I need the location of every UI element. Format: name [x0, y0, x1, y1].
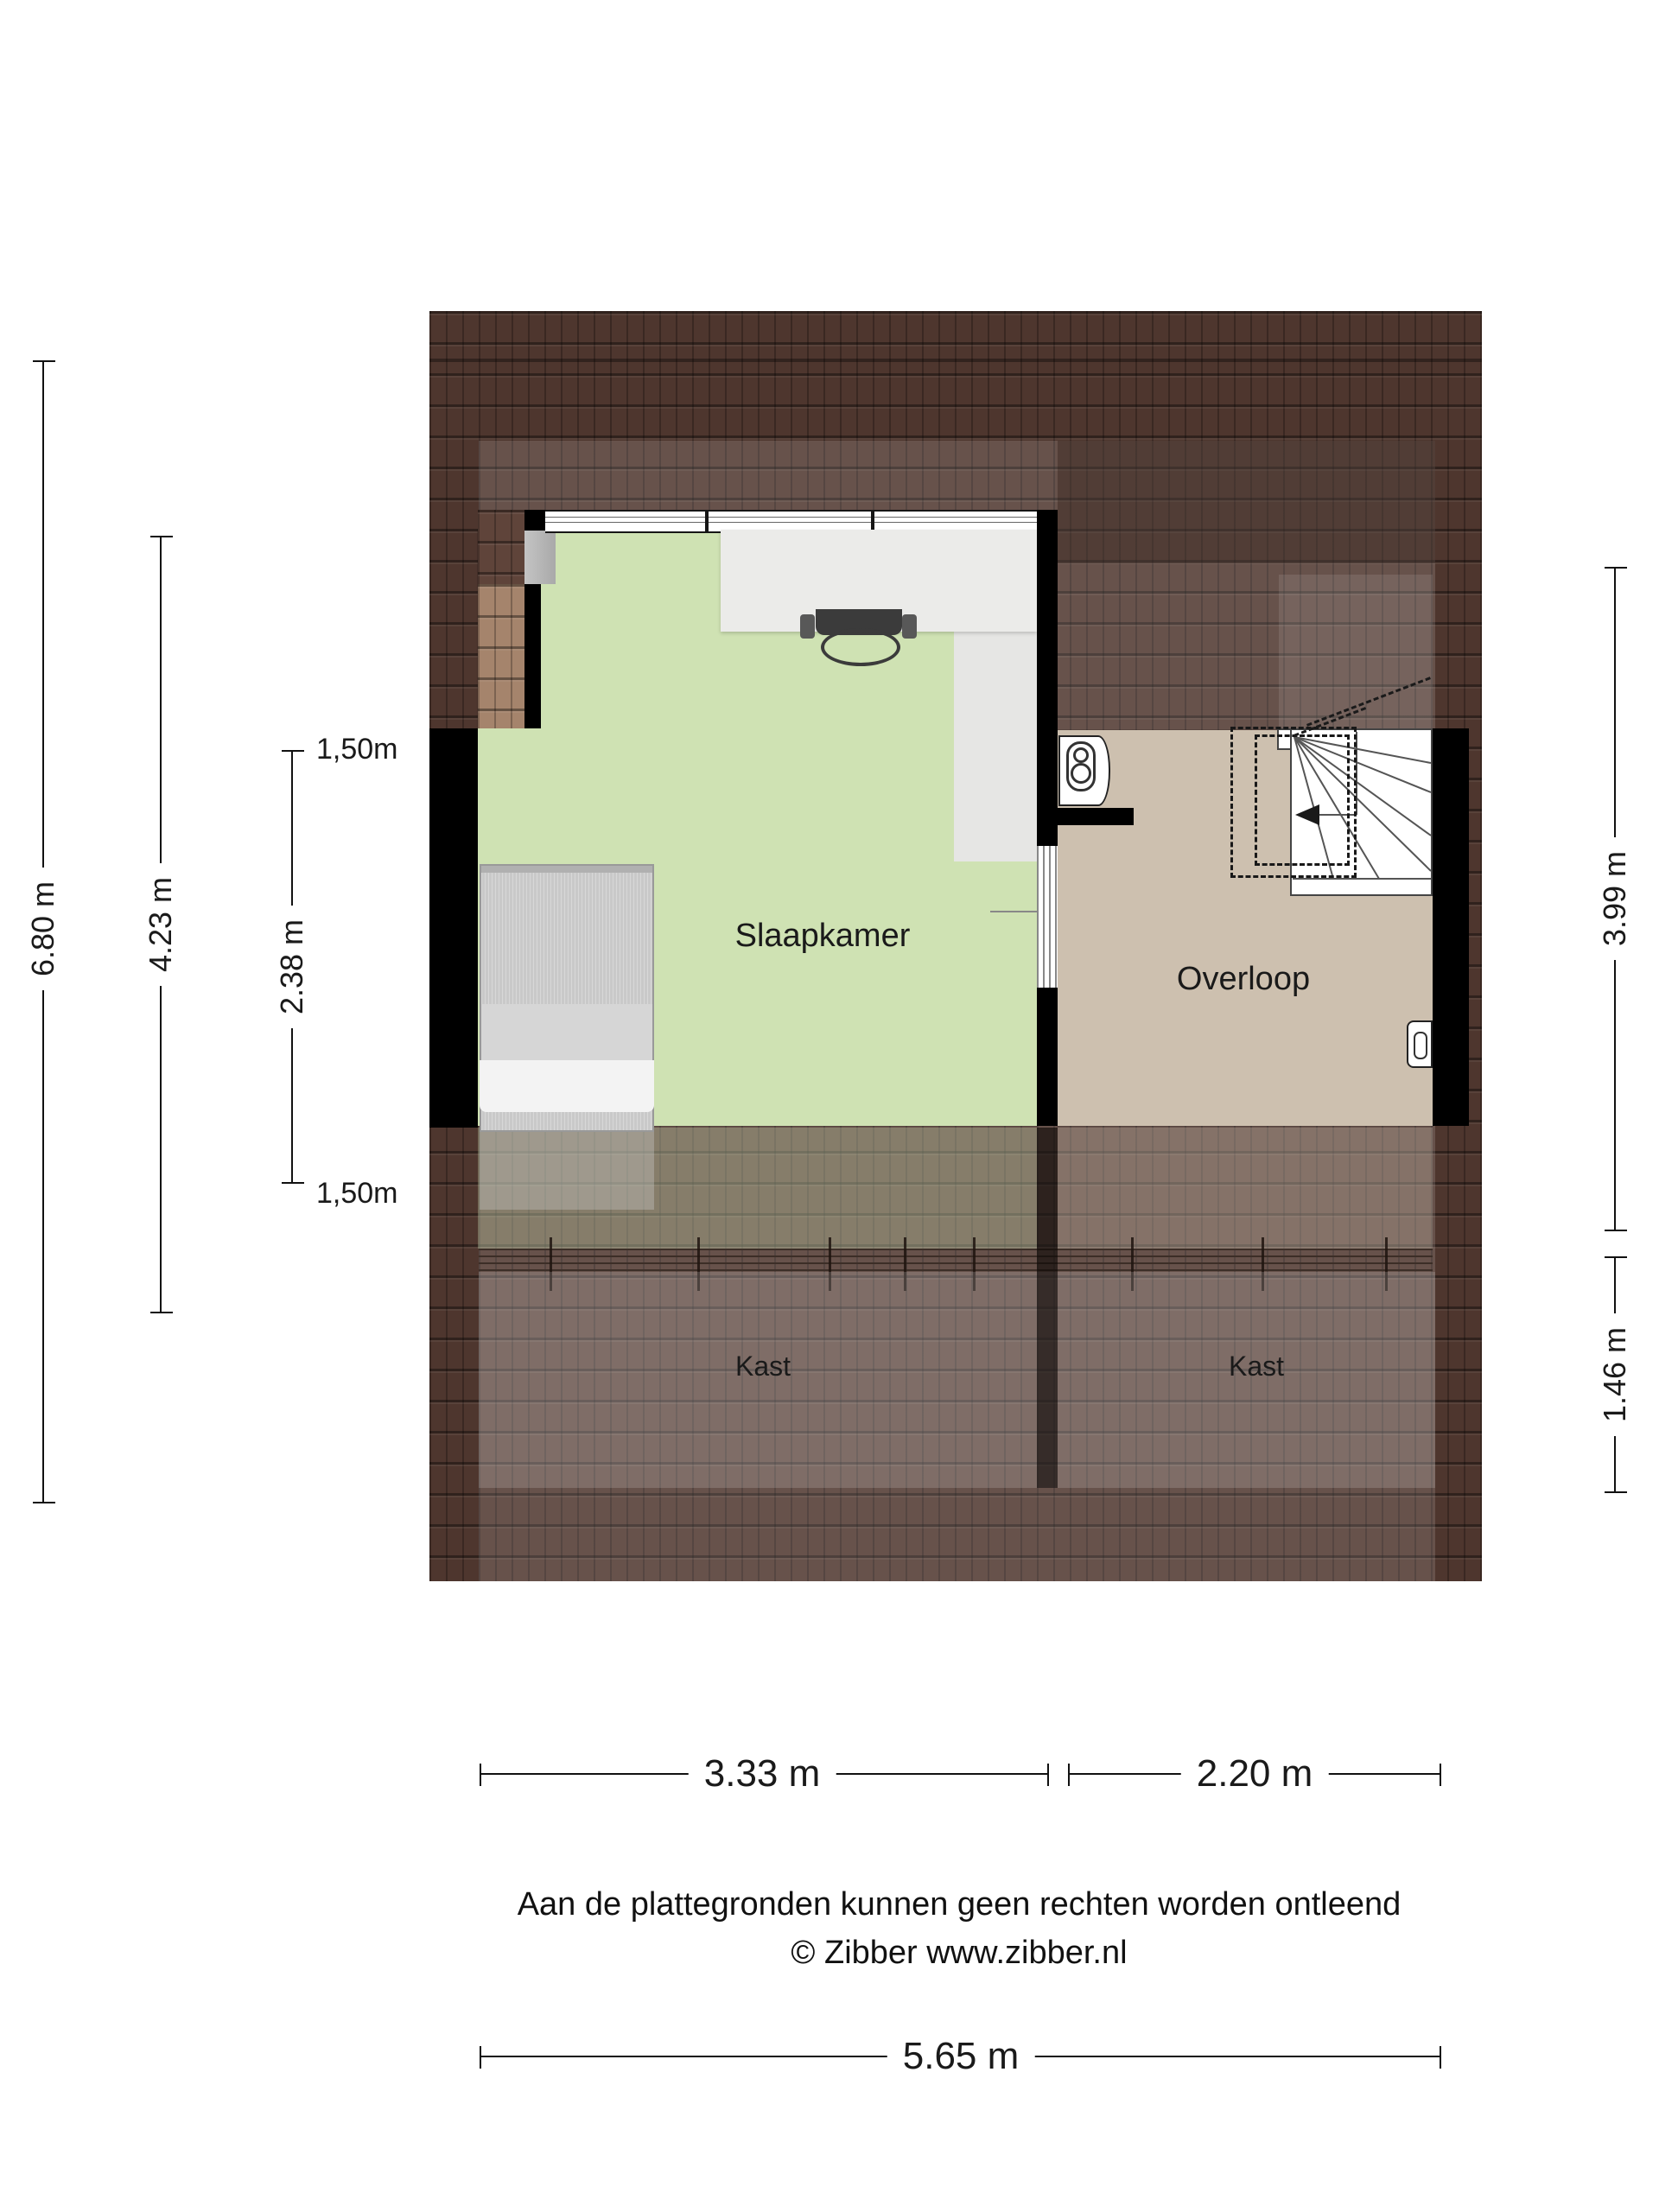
ceiling-height-marker-top: 1,50m: [316, 733, 398, 766]
roof-tint-landing: [1058, 1128, 1433, 1249]
bed-blanket-fold: [481, 1004, 652, 1060]
room-label-slaapkamer: Slaapkamer: [697, 918, 948, 955]
knee-wall-band: [479, 1249, 1433, 1272]
chair-seat: [821, 628, 900, 666]
door-swing-line: [990, 911, 1037, 912]
window-mullion: [705, 510, 709, 533]
wall-kast-divider: [1037, 1128, 1058, 1488]
wall-left-knee: [429, 728, 478, 1128]
ceiling-height-marker-bottom: 1,50m: [316, 1177, 398, 1211]
wall-bedroom-landing: [1037, 510, 1058, 1126]
footer: Aan de plattegronden kunnen geen rechten…: [311, 1880, 1607, 1977]
floorplan-page: Slaapkamer Overloop Kast Kast 6.80 m 4.2…: [0, 0, 1659, 2212]
dimension-label-left-inner: 2.38 m: [272, 906, 312, 1028]
chair-armrest: [902, 614, 917, 639]
roof-strip-lower: [478, 584, 524, 728]
dimension-label-right-upper: 3.99 m: [1595, 837, 1635, 960]
bed-sheet: [480, 1060, 654, 1112]
wall-right: [1433, 728, 1469, 1126]
roof-ridge-line: [429, 359, 1482, 362]
wall-stub-overloop: [1058, 808, 1134, 825]
loft-hatch-dashed-inner: [1255, 734, 1350, 866]
footer-copyright: © Zibber www.zibber.nl: [311, 1929, 1607, 1977]
bed-ghost-under-roof: [480, 1128, 654, 1210]
bed: [480, 864, 654, 1132]
wall-stub-left: [524, 584, 541, 728]
roof-strip-upper: [478, 510, 524, 584]
dimension-label-left-outer: 6.80 m: [23, 868, 63, 990]
wall-stub-window-left: [524, 510, 545, 531]
bed-headboard: [481, 866, 652, 873]
radiator-valve: [1414, 1032, 1427, 1059]
dormer-cheek-block: [524, 524, 556, 584]
radiator-icon: [1407, 1020, 1433, 1068]
room-label-overloop: Overloop: [1131, 961, 1356, 998]
dimension-label-bottom-right: 2.20 m: [1181, 1752, 1329, 1796]
dimension-label-bottom-left: 3.33 m: [689, 1752, 836, 1796]
dimension-label-right-lower: 1.46 m: [1595, 1313, 1635, 1436]
roof-patch-dark-right: [1058, 441, 1435, 563]
door-opening: [1037, 846, 1058, 988]
mechanical-ventilation-icon: [1058, 735, 1110, 806]
office-chair: [800, 609, 917, 661]
chair-armrest: [800, 614, 815, 639]
mv-dial-large: [1071, 763, 1091, 784]
floorplan-canvas: Slaapkamer Overloop Kast Kast: [429, 311, 1482, 1581]
footer-disclaimer: Aan de plattegronden kunnen geen rechten…: [311, 1880, 1607, 1929]
mv-dial-small: [1073, 747, 1089, 763]
room-label-kast-left: Kast: [694, 1351, 832, 1382]
dimension-label-left-middle: 4.23 m: [141, 863, 181, 986]
room-label-kast-right: Kast: [1187, 1351, 1325, 1382]
dimension-label-bottom-total: 5.65 m: [887, 2035, 1035, 2078]
